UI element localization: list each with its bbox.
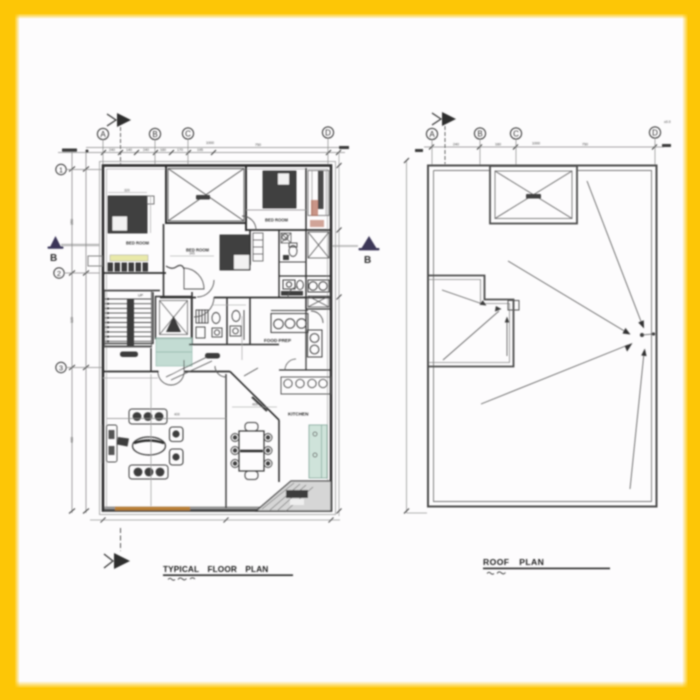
svg-text:160: 160 [495, 143, 501, 147]
svg-text:195: 195 [197, 148, 203, 152]
svg-text:160: 160 [160, 148, 166, 152]
svg-text:2: 2 [57, 269, 61, 278]
svg-text:ROOF PLAN: ROOF PLAN [483, 557, 544, 567]
svg-text:320: 320 [124, 189, 130, 193]
svg-text:B: B [477, 130, 482, 139]
svg-text:750: 750 [582, 143, 588, 147]
svg-text:FOOD PREP: FOOD PREP [264, 338, 291, 343]
svg-text:170: 170 [177, 148, 183, 152]
svg-text:A: A [100, 130, 106, 139]
svg-text:345: 345 [189, 252, 195, 256]
svg-text:C: C [185, 130, 191, 139]
svg-text:TYPICAL FLOOR PLAN: TYPICAL FLOOR PLAN [163, 564, 268, 574]
svg-text:750: 750 [255, 143, 261, 147]
svg-text:240: 240 [453, 143, 459, 147]
svg-text:3: 3 [59, 364, 63, 373]
svg-text:B: B [152, 130, 157, 139]
svg-text:D: D [652, 129, 658, 138]
svg-text:480: 480 [70, 437, 74, 443]
svg-text:1: 1 [59, 166, 63, 175]
svg-text:B: B [364, 255, 371, 266]
svg-text:1000: 1000 [206, 141, 214, 145]
svg-text:D: D [325, 129, 331, 138]
svg-text:±0.0: ±0.0 [664, 120, 671, 124]
svg-text:320: 320 [70, 317, 74, 323]
svg-text:BED ROOM: BED ROOM [126, 241, 150, 246]
svg-text:1000: 1000 [532, 142, 540, 146]
svg-text:B: B [50, 253, 57, 264]
svg-text:240: 240 [143, 148, 149, 152]
svg-text:A: A [429, 130, 435, 139]
svg-text:BED ROOM: BED ROOM [265, 218, 289, 223]
svg-text:KITCHEN: KITCHEN [288, 412, 309, 417]
svg-text:400: 400 [174, 413, 180, 417]
svg-text:UP: UP [138, 294, 144, 298]
svg-text:465: 465 [252, 403, 258, 407]
svg-text:140: 140 [126, 148, 132, 152]
svg-text:350: 350 [70, 219, 74, 225]
svg-text:240: 240 [109, 148, 115, 152]
svg-text:C: C [513, 130, 519, 139]
